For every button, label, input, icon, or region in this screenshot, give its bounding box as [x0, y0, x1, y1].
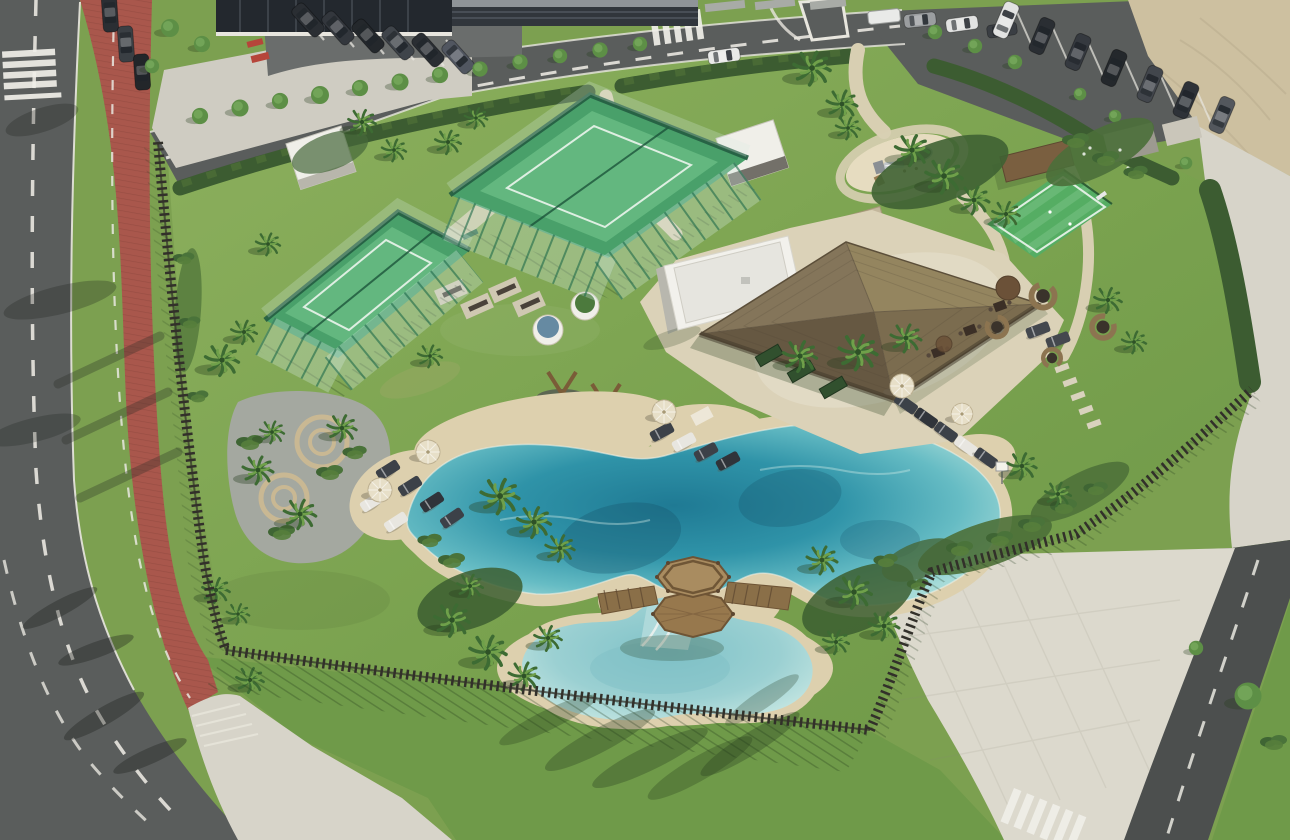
dark-parasol — [936, 336, 952, 352]
dark-parasol — [996, 276, 1020, 300]
aerial-resort-photo — [0, 0, 1290, 840]
white-van — [867, 8, 900, 24]
scene-canvas — [0, 0, 1290, 840]
car — [101, 0, 119, 32]
car — [117, 26, 135, 63]
building-two-roof — [452, 0, 698, 7]
